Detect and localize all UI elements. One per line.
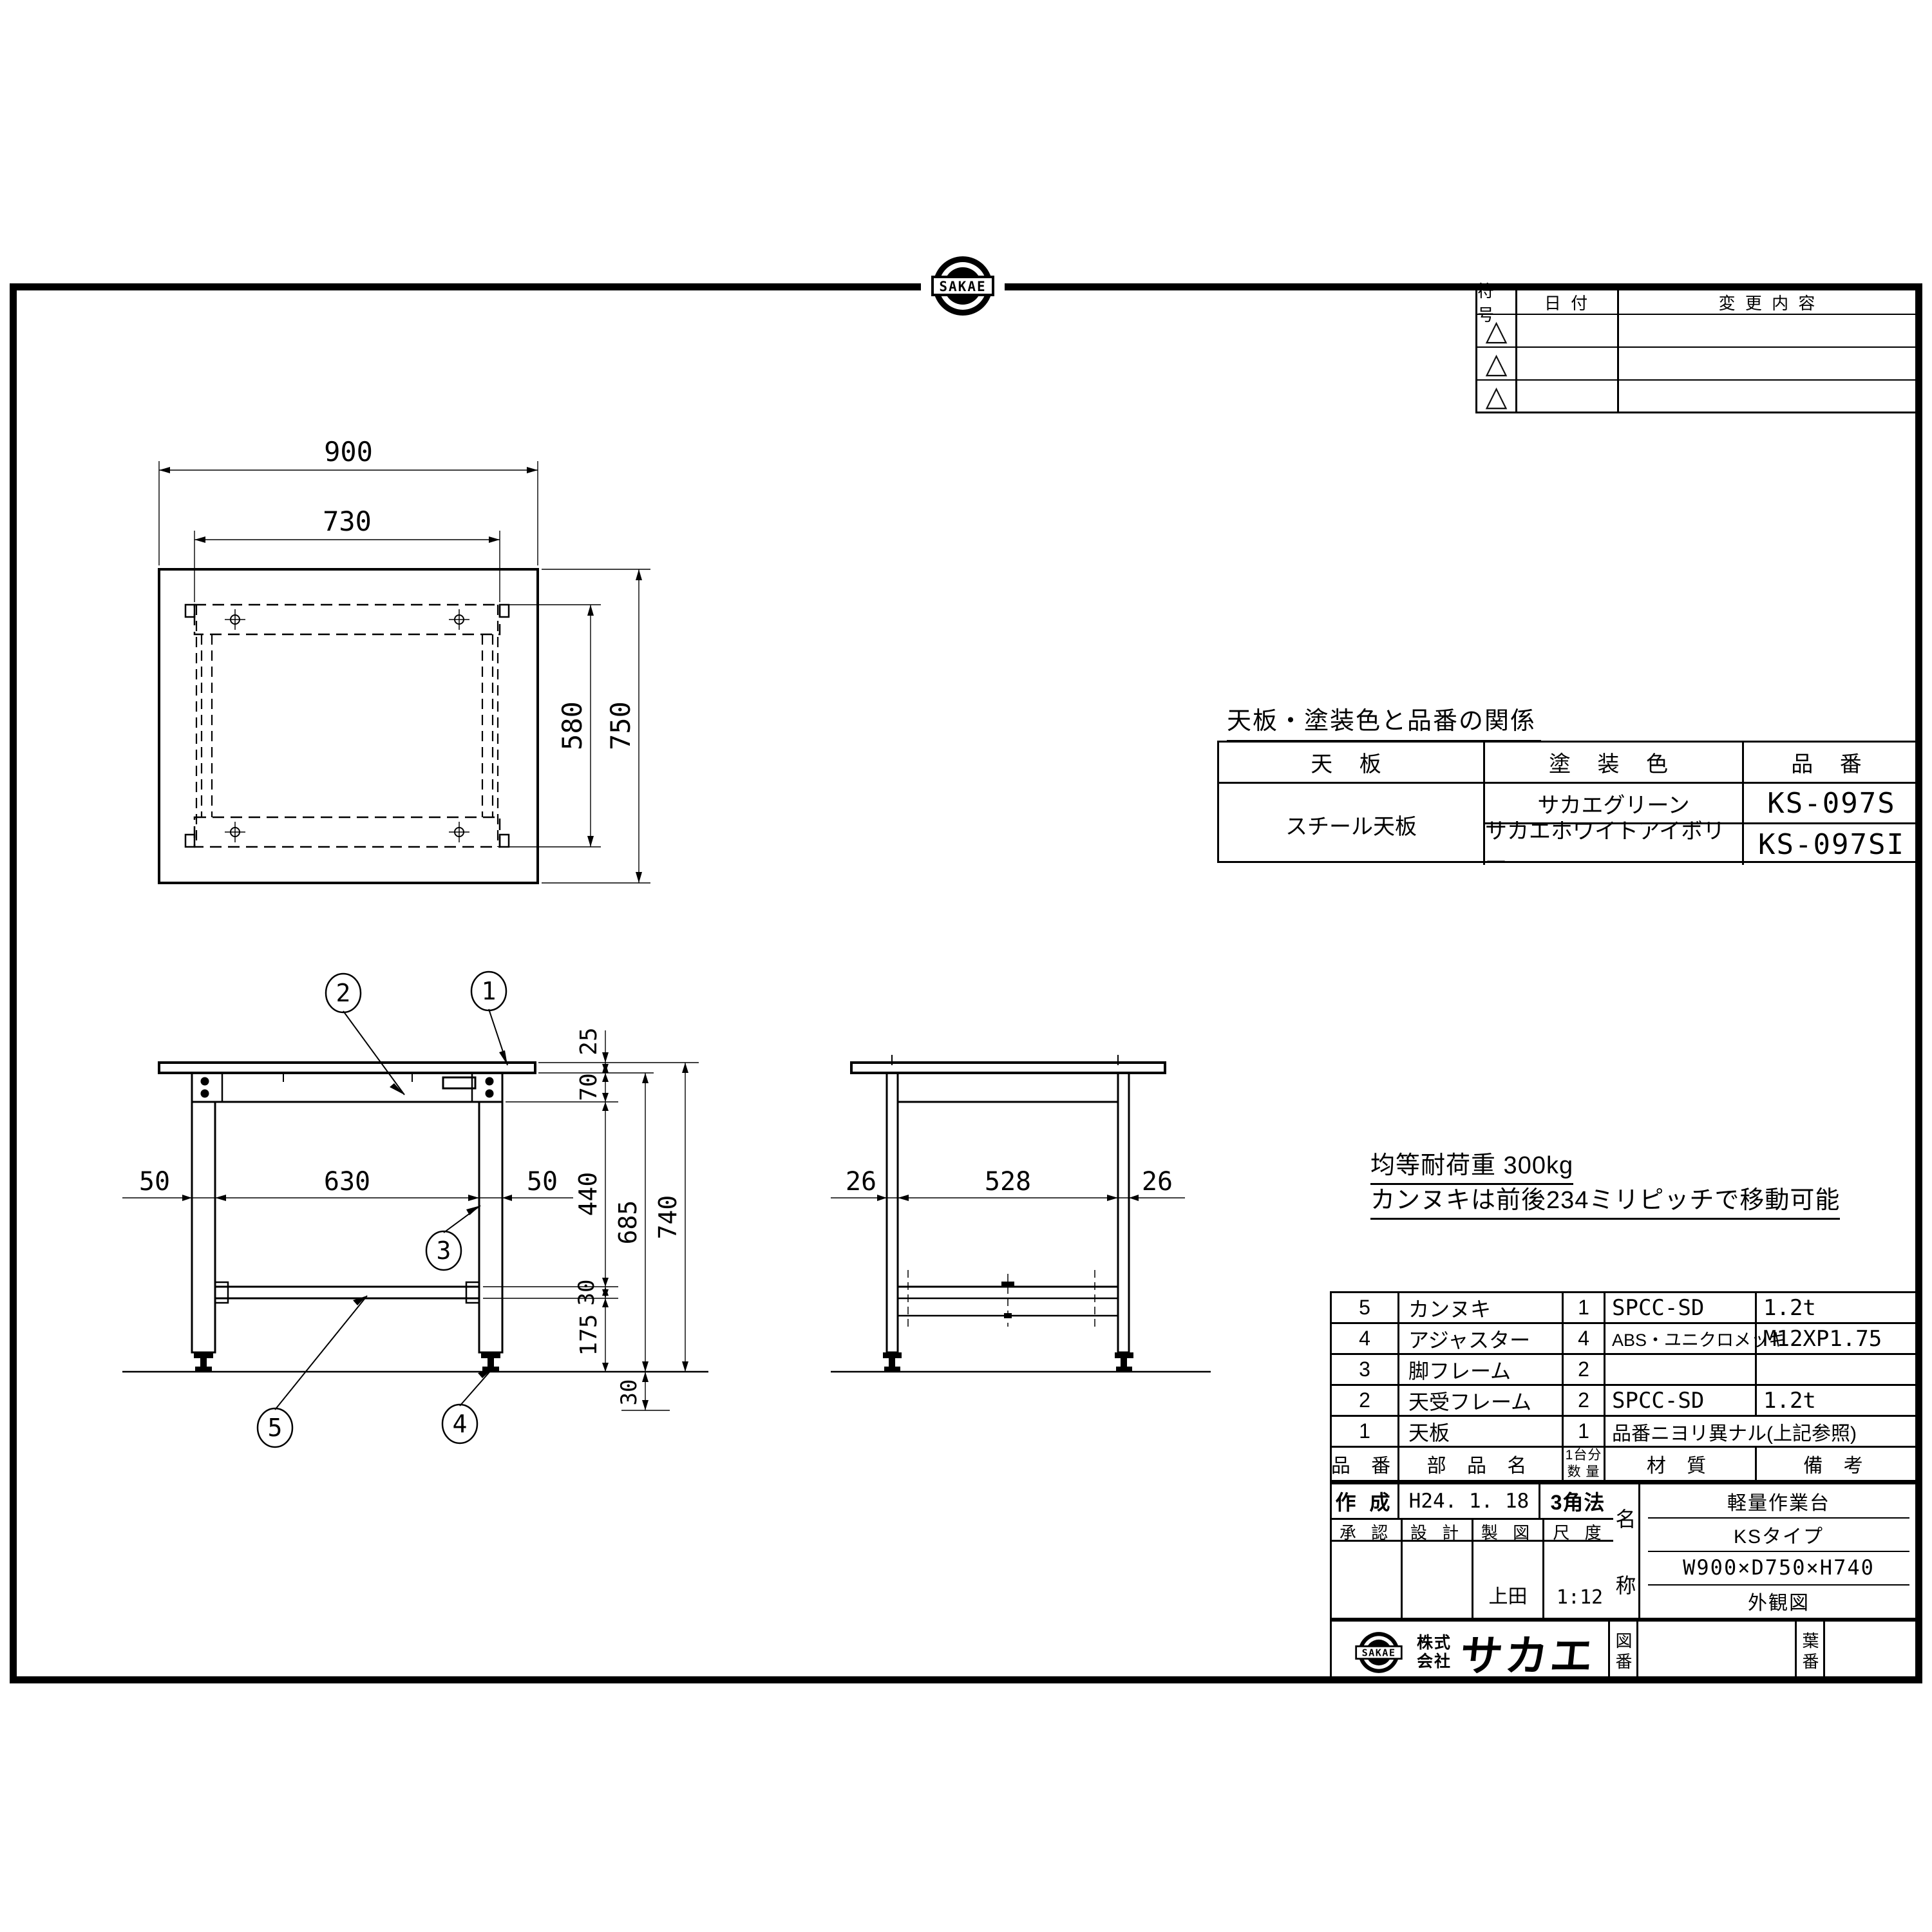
balloon-5: 5 <box>268 1414 283 1442</box>
top-view-tabletop <box>159 569 538 883</box>
screw-symbol-icon <box>225 609 469 842</box>
dim-text-900: 900 <box>324 436 373 468</box>
dim-text-175: 175 <box>576 1314 602 1356</box>
dim-text-50-right: 50 <box>527 1167 558 1197</box>
front-left-leg <box>192 1102 215 1352</box>
side-adjusters <box>883 1352 1133 1372</box>
dim-text-26-left: 26 <box>846 1167 876 1197</box>
front-right-leg <box>479 1102 502 1352</box>
dim-text-30-adjust: 30 <box>616 1379 642 1406</box>
front-adjusters <box>194 1352 500 1372</box>
dim-text-70: 70 <box>576 1073 602 1101</box>
crossbar-bracket <box>466 1282 479 1303</box>
side-centerlines <box>908 1270 1095 1331</box>
balloon-1: 1 <box>482 977 497 1005</box>
dim-text-30: 30 <box>574 1280 600 1306</box>
side-left-leg <box>887 1073 898 1352</box>
side-right-leg <box>1118 1073 1129 1352</box>
dim-text-730: 730 <box>323 506 372 537</box>
dim-text-528: 528 <box>985 1167 1031 1197</box>
balloon-3: 3 <box>437 1236 451 1265</box>
dim-text-630: 630 <box>324 1167 370 1197</box>
dim-text-580: 580 <box>556 701 588 750</box>
top-view-corner-notches <box>185 605 509 847</box>
drawing-views: 900 730 750 580 <box>0 0 1932 1932</box>
side-view: 26 528 26 <box>831 1055 1211 1372</box>
balloons <box>258 972 507 1447</box>
front-tabletop <box>159 1063 535 1073</box>
dim-text-440: 440 <box>574 1172 602 1217</box>
top-view: 900 730 750 580 <box>159 436 650 883</box>
top-view-leg-lines <box>196 605 498 847</box>
front-view: 50 630 50 <box>122 972 708 1447</box>
balloon-2: 2 <box>336 979 351 1007</box>
front-label-plate <box>443 1077 475 1088</box>
dim-text-685: 685 <box>614 1200 642 1245</box>
front-crossbar <box>215 1287 479 1298</box>
dim-text-750: 750 <box>605 701 636 750</box>
balloon-4: 4 <box>453 1410 468 1438</box>
dim-730 <box>194 531 500 602</box>
dim-text-26-right: 26 <box>1142 1167 1173 1197</box>
dim-text-50-left: 50 <box>139 1167 170 1197</box>
dim-text-740: 740 <box>654 1195 682 1240</box>
dim-text-25: 25 <box>576 1027 602 1055</box>
crossbar-bracket <box>215 1282 228 1303</box>
drawing-sheet: SAKAE 符号 日 付 変 更 内 容 △ △ △ 天板・塗装色と品番の関係 … <box>0 0 1932 1932</box>
